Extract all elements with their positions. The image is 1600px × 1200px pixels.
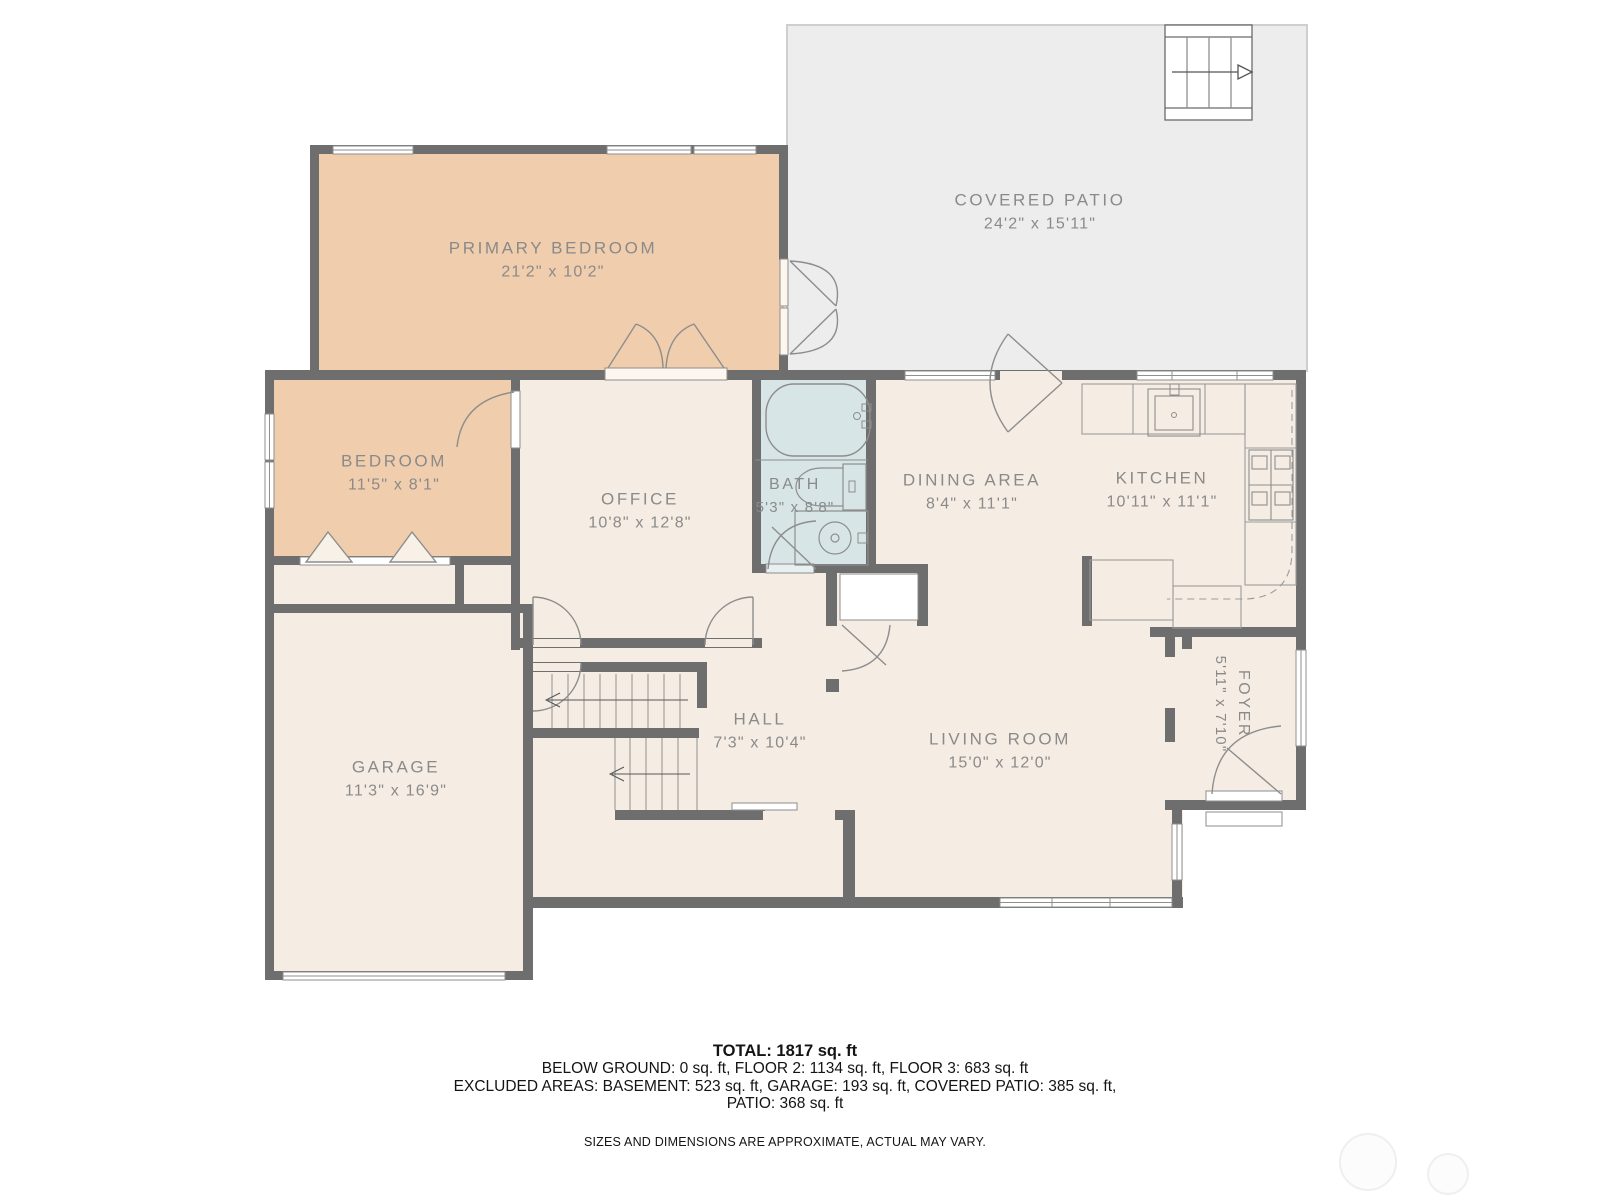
excluded-area-text: EXCLUDED AREAS: BASEMENT: 523 sq. ft, GA… [0,1078,1570,1096]
bedroom-fill [270,374,516,564]
floor-plan-page: COVERED PATIO 24'2" x 15'11" PRIMARY BED… [0,0,1600,1200]
floors-area-text: BELOW GROUND: 0 sq. ft, FLOOR 2: 1134 sq… [0,1060,1570,1078]
hall-closet-box [840,574,918,620]
bath-fill [757,376,872,569]
floor-plan-drawing [0,0,1600,1200]
covered-patio-area [787,25,1307,371]
excluded-area-cont-text: PATIO: 368 sq. ft [0,1095,1570,1113]
area-summary: TOTAL: 1817 sq. ft BELOW GROUND: 0 sq. f… [0,1042,1570,1149]
dining-window [905,371,995,380]
garage-door [283,972,505,980]
kitchen-window [1137,371,1273,380]
primary-bedroom-fill [314,149,784,375]
disclaimer-text: SIZES AND DIMENSIONS ARE APPROXIMATE, AC… [0,1135,1570,1149]
total-area-text: TOTAL: 1817 sq. ft [0,1042,1570,1060]
foyer-window [1296,650,1306,746]
living-side-window [1172,824,1182,880]
living-room-window [1000,898,1172,907]
patio-stairs [1165,25,1252,120]
